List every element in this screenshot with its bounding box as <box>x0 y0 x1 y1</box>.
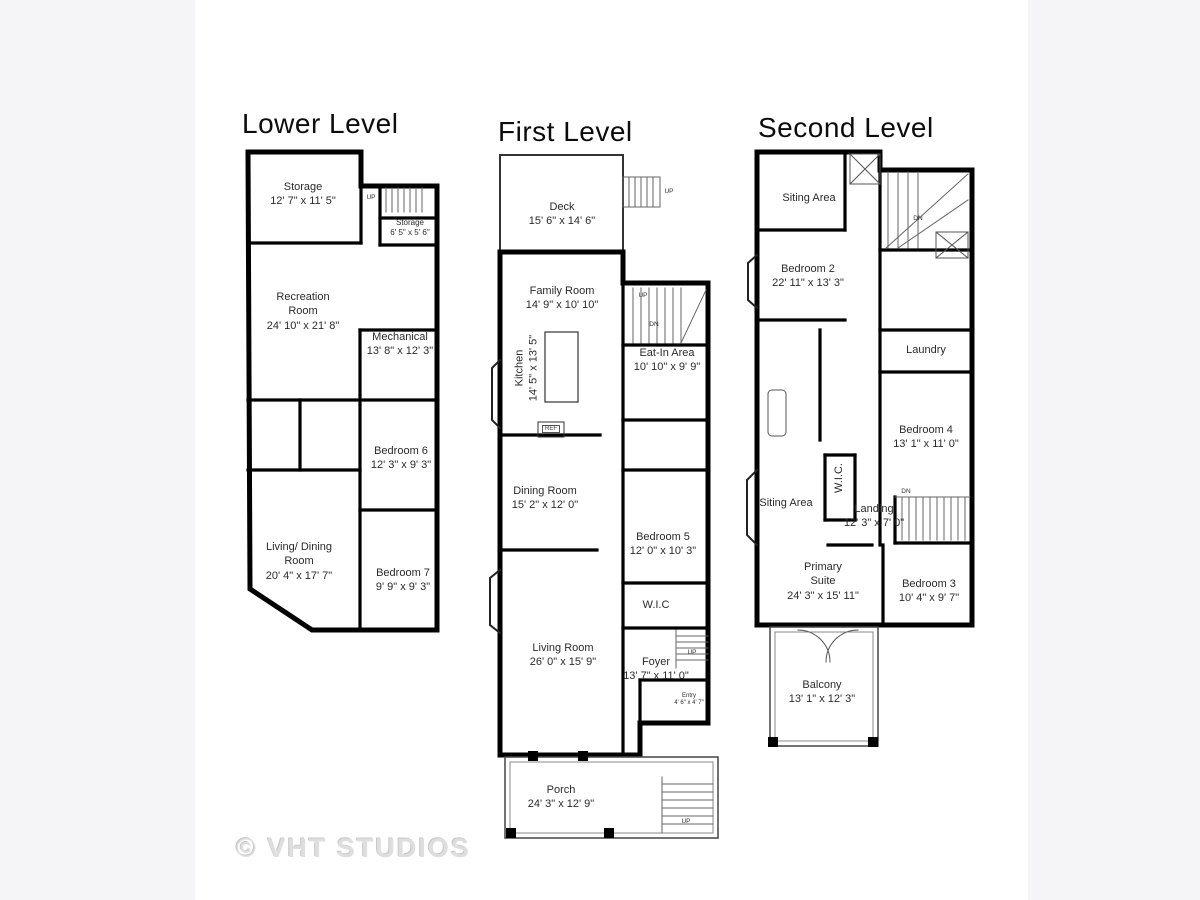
room-label-storage-small: Storage 6' 5" x 5' 6" <box>380 218 440 237</box>
lower-level-title: Lower Level <box>242 108 398 140</box>
room-label-kitchen: Kitchen 14' 5" x 13' 5" <box>513 313 542 423</box>
room-dims: 9' 9" x 9' 3" <box>376 580 430 594</box>
room-name: Storage <box>284 180 323 194</box>
room-dims: 24' 10" x 21' 8" <box>267 319 340 333</box>
room-name: Balcony <box>802 678 841 692</box>
room-name: Bedroom 5 <box>636 530 690 544</box>
room-label-mechanical: Mechanical 13' 8" x 12' 3" <box>355 330 445 359</box>
room-dims: 12' 7" x 11' 5" <box>270 194 336 208</box>
bathtub <box>768 390 786 436</box>
room-name: W.I.C <box>643 598 670 612</box>
stair-label-up-deck: UP <box>664 188 673 195</box>
room-name: Bedroom 3 <box>902 577 956 591</box>
room-label-recreation-room: Recreation Room 24' 10" x 21' 8" <box>263 290 343 333</box>
room-label-wic-second: W.I.C. <box>832 458 846 498</box>
room-name: Bedroom 7 <box>376 566 430 580</box>
stair-label-up-main: UP <box>638 292 647 299</box>
room-dims: 12' 3" x 9' 3" <box>371 458 431 472</box>
stair-label-up: UP <box>366 194 375 201</box>
room-label-storage: Storage 12' 7" x 11' 5" <box>258 180 348 209</box>
room-dims: 20' 4" x 17' 7" <box>266 569 332 583</box>
stair-label-dn-landing: DN <box>901 488 910 495</box>
stair-label-up-porch: UP <box>681 818 690 825</box>
room-dims: 13' 8" x 12' 3" <box>367 344 433 358</box>
room-label-bedroom-2: Bedroom 2 22' 11" x 13' 3" <box>753 262 863 291</box>
floorplan-sheet: Lower Level First Level Second Level Sto… <box>0 0 1200 900</box>
room-label-family-room: Family Room 14' 9" x 10' 10" <box>507 284 617 313</box>
room-dims: 13' 7" x 11' 0" <box>623 669 689 683</box>
room-name: Foyer <box>642 655 670 669</box>
room-label-porch: Porch 24' 3" x 12' 9" <box>516 783 606 812</box>
room-name: Primary Suite <box>791 560 855 589</box>
room-dims: 13' 1" x 12' 3" <box>789 692 855 706</box>
shower <box>850 154 880 184</box>
upper-stairs <box>886 172 968 248</box>
stair-label-dn-upper: DN <box>913 215 922 222</box>
room-dims: 10' 4" x 9' 7" <box>899 591 959 605</box>
room-label-bedroom-4: Bedroom 4 13' 1" x 11' 0" <box>881 423 971 452</box>
room-label-bedroom-6: Bedroom 6 12' 3" x 9' 3" <box>356 444 446 473</box>
room-dims: 6' 5" x 5' 6" <box>390 228 429 238</box>
room-name: Recreation Room <box>263 290 343 319</box>
room-name: Mechanical <box>372 330 428 344</box>
deck-stairs <box>623 177 660 207</box>
first-level-title: First Level <box>498 116 633 148</box>
room-name: Eat-In Area <box>639 346 694 360</box>
room-label-foyer: Foyer 13' 7" x 11' 0" <box>611 655 701 684</box>
room-dims: 15' 6" x 14' 6" <box>529 214 595 228</box>
room-dims: 13' 1" x 11' 0" <box>893 437 959 451</box>
room-label-bedroom-5: Bedroom 5 12' 0" x 10' 3" <box>618 530 708 559</box>
second-level-title: Second Level <box>758 112 934 144</box>
room-label-primary-suite: Primary Suite 24' 3" x 15' 11" <box>791 560 855 603</box>
room-label-living-room: Living Room 26' 0" x 15' 9" <box>508 641 618 670</box>
room-label-living-dining-room: Living/ Dining Room 20' 4" x 17' 7" <box>257 540 341 583</box>
refrigerator-label: REF <box>542 425 560 433</box>
room-name: Siting Area <box>782 191 835 205</box>
room-name: Laundry <box>906 343 946 357</box>
vht-studios-watermark: © VHT STUDIOS <box>236 833 471 864</box>
room-name: Deck <box>549 200 574 214</box>
room-label-balcony: Balcony 13' 1" x 12' 3" <box>777 678 867 707</box>
linen-closet <box>936 232 968 258</box>
room-dims: 10' 10" x 9' 9" <box>634 360 700 374</box>
room-label-bedroom-7: Bedroom 7 9' 9" x 9' 3" <box>363 566 443 595</box>
room-label-bedroom-3: Bedroom 3 10' 4" x 9' 7" <box>884 577 974 606</box>
room-name: Entry <box>682 693 696 700</box>
stair-label-dn-main: DN <box>649 321 658 328</box>
room-label-deck: Deck 15' 6" x 14' 6" <box>517 200 607 229</box>
room-label-entry: Entry 4' 6" x 4' 7" <box>669 693 709 706</box>
room-name: Bedroom 2 <box>781 262 835 276</box>
room-dims: 24' 3" x 15' 11" <box>787 589 859 603</box>
room-name: Family Room <box>530 284 595 298</box>
room-dims: 15' 2" x 12' 0" <box>512 498 578 512</box>
room-dims: 14' 5" x 13' 5" <box>527 335 541 401</box>
room-name: Bedroom 4 <box>899 423 953 437</box>
room-name: Landing <box>854 502 893 516</box>
balcony-doors <box>798 630 858 662</box>
room-label-wic-first: W.I.C <box>626 598 686 612</box>
room-name: W.I.C. <box>832 463 846 493</box>
room-label-laundry: Laundry <box>886 343 966 357</box>
room-label-siting-area-top: Siting Area <box>764 191 854 205</box>
room-name: Bedroom 6 <box>374 444 428 458</box>
room-label-eat-in-area: Eat-In Area 10' 10" x 9' 9" <box>639 346 695 375</box>
room-dims: 4' 6" x 4' 7" <box>674 700 704 707</box>
room-name: Dining Room <box>513 484 577 498</box>
kitchen-island <box>545 332 578 402</box>
room-label-landing: Landing 12' 3" x 7' 0" <box>829 502 919 531</box>
lower-stairs <box>386 188 422 212</box>
room-name: Porch <box>547 783 576 797</box>
room-dims: 14' 9" x 10' 10" <box>526 298 599 312</box>
room-name: Siting Area <box>759 496 812 510</box>
room-name: Storage <box>396 218 424 228</box>
room-dims: 12' 3" x 7' 0" <box>844 516 904 530</box>
stair-label-up-foyer: UP <box>687 649 696 656</box>
room-label-siting-area-mid: Siting Area <box>741 496 831 510</box>
room-label-dining-room: Dining Room 15' 2" x 12' 0" <box>490 484 600 513</box>
room-name: Living/ Dining Room <box>257 540 341 569</box>
room-name: Kitchen <box>513 350 527 387</box>
room-dims: 26' 0" x 15' 9" <box>530 655 596 669</box>
room-dims: 24' 3" x 12' 9" <box>528 797 594 811</box>
room-dims: 12' 0" x 10' 3" <box>630 544 696 558</box>
room-name: Living Room <box>532 641 593 655</box>
room-dims: 22' 11" x 13' 3" <box>772 276 844 290</box>
